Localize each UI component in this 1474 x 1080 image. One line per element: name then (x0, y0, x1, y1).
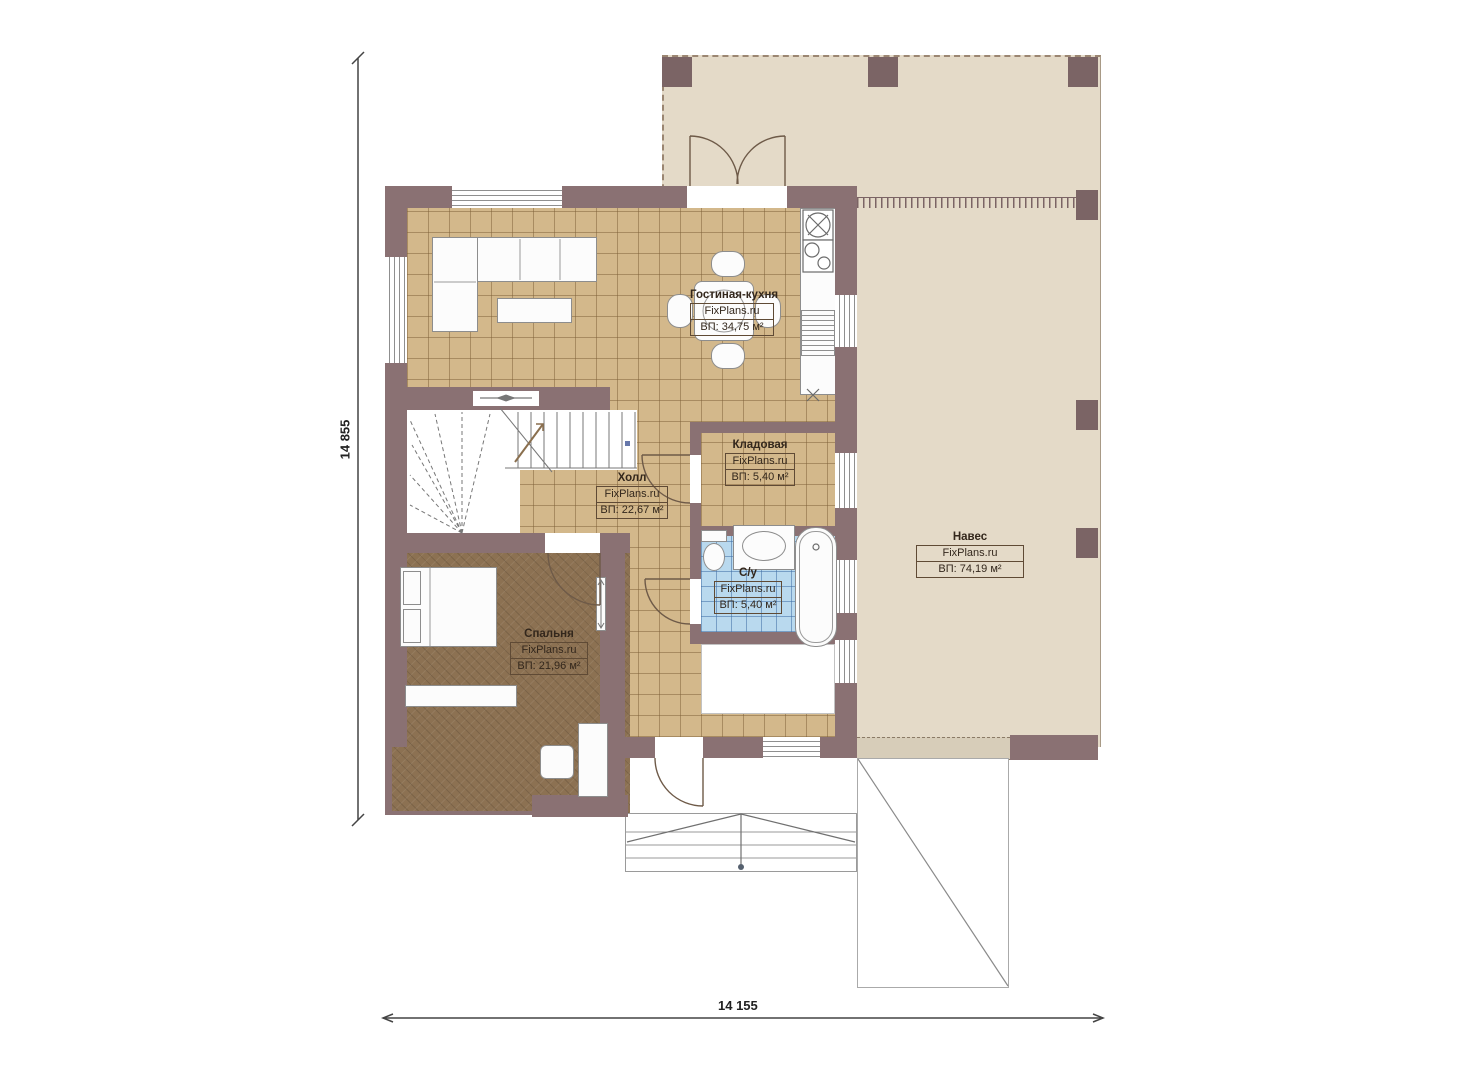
kitchen-appliance (801, 310, 835, 356)
room-name: С/у (714, 567, 782, 579)
stairs-area-winder (407, 410, 520, 535)
wall-bedroom-bottom (532, 795, 628, 817)
room-info-box: FixPlans.ru ВП: 34,75 м² (690, 303, 774, 336)
room-area: ВП: 5,40 м² (726, 470, 794, 485)
room-area: ВП: 22,67 м² (597, 503, 667, 518)
driveway (857, 758, 1009, 988)
canopy-railing (857, 197, 1077, 208)
desk (578, 723, 608, 797)
room-name: Спальня (510, 628, 588, 640)
room-area: ВП: 5,40 м² (715, 598, 781, 613)
room-info-box: FixPlans.ru ВП: 5,40 м² (725, 453, 795, 486)
section-marker (625, 441, 630, 446)
canopy-post (1076, 190, 1098, 220)
brand-text: FixPlans.ru (917, 546, 1023, 562)
room-area: ВП: 21,96 м² (511, 659, 587, 674)
canopy-post (1068, 57, 1098, 87)
brand-text: FixPlans.ru (691, 304, 773, 320)
coffee-table (497, 298, 572, 323)
sink-basin (742, 531, 786, 561)
room-area: ВП: 74,19 м² (917, 562, 1023, 577)
wall-bedroom-bottom-line (385, 811, 535, 815)
dining-chair (711, 343, 745, 369)
bathroom-door-opening (690, 579, 701, 624)
french-door-threshold (687, 186, 787, 208)
room-info-box: FixPlans.ru ВП: 5,40 м² (714, 581, 782, 614)
toilet-tank (701, 530, 727, 542)
dimension-width: 14 155 (718, 998, 758, 1013)
canopy-post (868, 57, 898, 87)
wall-radiator (473, 391, 539, 406)
window-right-storage (835, 453, 857, 508)
room-info-box: FixPlans.ru ВП: 21,96 м² (510, 642, 588, 675)
bathtub-inner (799, 531, 833, 643)
room-label-living-kitchen: Гостиная-кухня FixPlans.ru ВП: 34,75 м² (690, 289, 774, 336)
room-name: Гостиная-кухня (690, 289, 774, 301)
bedroom-door-opening (545, 533, 600, 553)
canopy-post (1076, 400, 1098, 430)
room-area: ВП: 34,75 м² (691, 320, 773, 335)
storage-door-opening (690, 455, 701, 503)
room-info-box: FixPlans.ru ВП: 22,67 м² (596, 486, 668, 519)
window-right-hall (835, 640, 857, 683)
hall-wardrobe-niche (701, 644, 835, 714)
canopy-post (1076, 528, 1098, 558)
brand-text: FixPlans.ru (511, 643, 587, 659)
wall-left-thin (385, 747, 392, 815)
window-bottom (763, 737, 820, 758)
entrance-door-opening (655, 737, 703, 758)
window-top (452, 186, 562, 208)
room-name: Навес (916, 531, 1024, 543)
room-name: Кладовая (725, 439, 795, 451)
brand-text: FixPlans.ru (597, 487, 667, 503)
window-right-kitchen (835, 295, 857, 347)
desk-chair (540, 745, 574, 779)
dresser (405, 685, 517, 707)
room-label-hall: Холл FixPlans.ru ВП: 22,67 м² (596, 472, 668, 519)
kitchen-counter (800, 208, 835, 395)
pillow (403, 609, 421, 643)
room-label-canopy: Навес FixPlans.ru ВП: 74,19 м² (916, 531, 1024, 578)
room-label-bathroom: С/у FixPlans.ru ВП: 5,40 м² (714, 567, 782, 614)
wall-storage-top (690, 422, 857, 433)
room-name: Холл (596, 472, 668, 484)
brand-text: FixPlans.ru (726, 454, 794, 470)
canopy-post (662, 57, 692, 87)
window-right-bathroom (835, 560, 857, 613)
canopy-corner-wall (1010, 735, 1098, 760)
window-left (385, 257, 407, 363)
entrance-porch-steps (625, 813, 857, 872)
sofa-chaise (432, 237, 478, 332)
brand-text: FixPlans.ru (715, 582, 781, 598)
dimension-height: 14 855 (337, 420, 352, 460)
bedroom-radiator (596, 577, 606, 631)
canopy-edge-strip (857, 737, 1010, 760)
room-label-bedroom: Спальня FixPlans.ru ВП: 21,96 м² (510, 628, 588, 675)
floor-plan-canvas: 14 855 14 155 Гостиная-кухня FixPlans.ru… (0, 0, 1474, 1080)
room-label-storage: Кладовая FixPlans.ru ВП: 5,40 м² (725, 439, 795, 486)
pillow (403, 571, 421, 605)
room-info-box: FixPlans.ru ВП: 74,19 м² (916, 545, 1024, 578)
dining-chair (711, 251, 745, 277)
